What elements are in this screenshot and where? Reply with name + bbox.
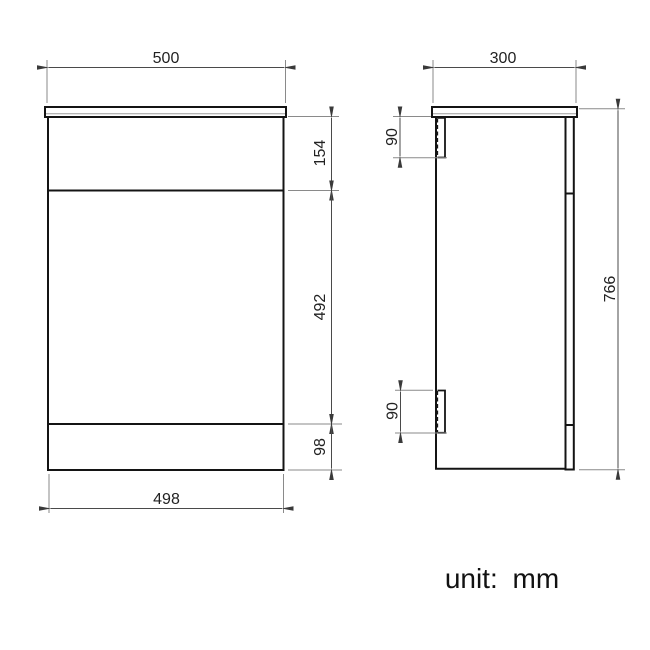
dim-label-side-depth: 300 [490,50,517,67]
unit-note: unit: mm [445,563,559,594]
technical-drawing: 500 498 154 492 98 [0,0,650,650]
side-view [432,107,577,470]
dim-front-bottom-width: 498 [49,474,284,513]
drawing-canvas: 500 498 154 492 98 [0,0,650,650]
side-worktop [432,107,577,117]
dim-label-side-overall-height: 766 [602,276,619,303]
dim-label-side-top-fixing: 90 [384,128,401,146]
dim-front-top-width: 500 [47,50,286,103]
front-worktop [45,107,286,117]
dim-label-front-top-width: 500 [153,50,180,67]
dim-label-front-upper-height: 154 [312,140,329,167]
dim-side-depth: 300 [433,50,576,103]
dim-side-overall-height: 766 [579,109,625,470]
dim-label-front-plinth-height: 98 [312,438,329,456]
dim-label-side-bottom-fixing: 90 [385,402,402,420]
side-bottom-fixing-bracket [438,391,446,433]
dim-label-front-bottom-width: 498 [153,491,180,508]
front-cabinet-body [48,117,284,470]
dim-front-heights: 154 492 98 [288,117,342,471]
side-door-panel [566,117,574,470]
front-view [45,107,286,470]
dim-label-front-door-height: 492 [312,294,329,321]
side-top-fixing-bracket [438,118,446,158]
